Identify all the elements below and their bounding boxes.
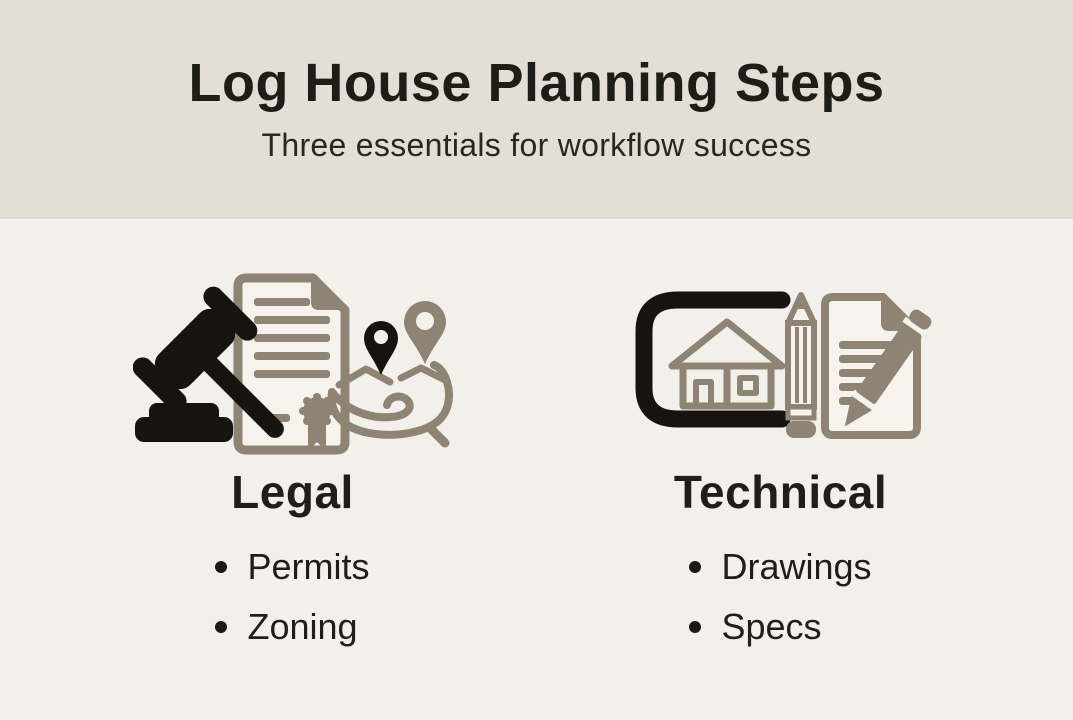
infographic-page: Log House Planning Steps Three essential… [0, 0, 1073, 720]
location-pin-taupe [404, 301, 446, 364]
content-area: Legal Permits Zoning [0, 219, 1073, 657]
legal-icons-illustration [133, 271, 453, 457]
column-technical: Technical Drawings Specs [576, 269, 986, 657]
legal-icon-group [133, 269, 453, 459]
list-item: Permits [215, 537, 369, 597]
bullet-label-permits: Permits [247, 546, 369, 588]
column-legal: Legal Permits Zoning [88, 269, 498, 657]
technical-icons-illustration [630, 279, 932, 449]
technical-bullet-list: Drawings Specs [689, 537, 871, 657]
bullet-label-zoning: Zoning [247, 606, 357, 648]
bullet-dot [215, 561, 227, 573]
pencil-icon [786, 295, 816, 438]
bullet-dot [689, 621, 701, 633]
bullet-label-specs: Specs [721, 606, 821, 648]
bullet-dot [689, 561, 701, 573]
page-subtitle: Three essentials for workflow success [0, 127, 1073, 164]
column-heading-technical: Technical [674, 465, 887, 519]
header-band: Log House Planning Steps Three essential… [0, 0, 1073, 219]
legal-bullet-list: Permits Zoning [215, 537, 369, 657]
certificate-document-icon [238, 275, 348, 451]
document-edit-icon [825, 293, 932, 435]
bullet-dot [215, 621, 227, 633]
page-title: Log House Planning Steps [0, 54, 1073, 113]
technical-icon-group [630, 269, 932, 459]
list-item: Specs [689, 597, 871, 657]
house-outline [672, 322, 782, 406]
list-item: Drawings [689, 537, 871, 597]
bullet-label-drawings: Drawings [721, 546, 871, 588]
column-heading-legal: Legal [231, 465, 354, 519]
blueprint-house-icon [644, 300, 782, 419]
list-item: Zoning [215, 597, 369, 657]
